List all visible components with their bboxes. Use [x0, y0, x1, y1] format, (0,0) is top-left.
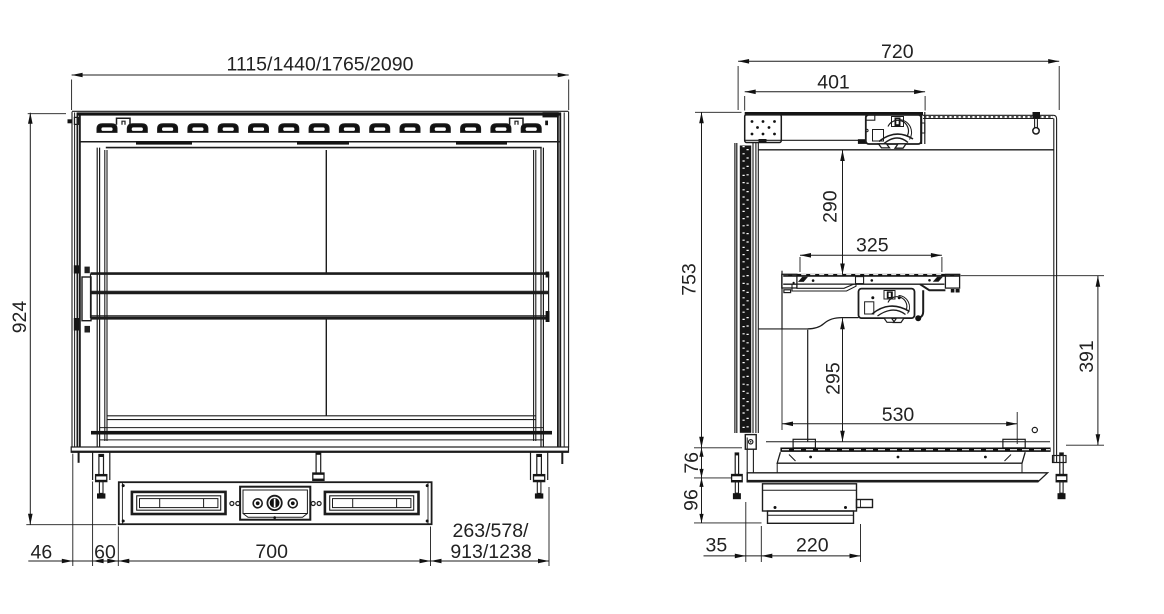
svg-text:391: 391 — [1076, 340, 1098, 373]
svg-text:60: 60 — [94, 542, 116, 564]
svg-text:46: 46 — [31, 542, 53, 564]
svg-text:325: 325 — [856, 235, 889, 257]
svg-text:263/578/: 263/578/ — [453, 520, 529, 542]
svg-text:530: 530 — [882, 404, 915, 426]
svg-text:76: 76 — [681, 452, 703, 474]
svg-text:753: 753 — [679, 263, 701, 296]
svg-text:1115/1440/1765/2090: 1115/1440/1765/2090 — [227, 54, 414, 76]
svg-text:720: 720 — [881, 41, 914, 63]
svg-text:295: 295 — [822, 362, 844, 395]
svg-text:924: 924 — [9, 301, 31, 334]
svg-text:913/1238: 913/1238 — [450, 541, 531, 563]
svg-text:401: 401 — [817, 71, 850, 93]
svg-text:96: 96 — [681, 489, 703, 511]
svg-text:35: 35 — [706, 535, 728, 557]
svg-text:290: 290 — [820, 190, 842, 223]
svg-text:700: 700 — [255, 541, 288, 563]
svg-text:220: 220 — [796, 535, 829, 557]
